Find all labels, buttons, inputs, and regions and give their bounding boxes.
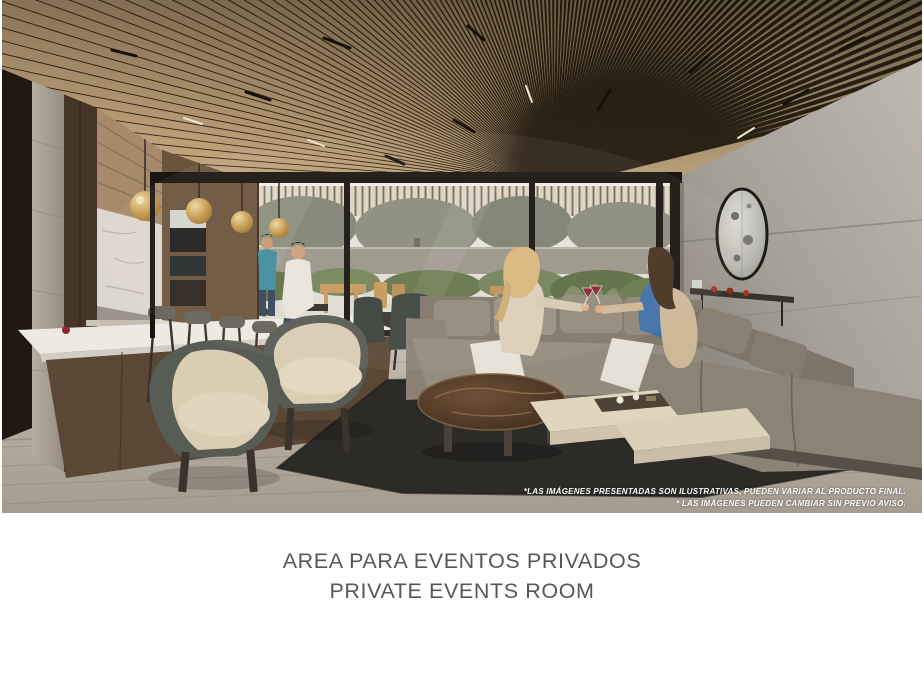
wine-glass [62, 326, 70, 334]
caption-line-english: PRIVATE EVENTS ROOM [0, 576, 924, 606]
events-room-rendering: *LAS IMÁGENES PRESENTADAS SON ILUSTRATIV… [2, 0, 922, 513]
disclaimer-line-1: *LAS IMÁGENES PRESENTADAS SON ILUSTRATIV… [524, 486, 906, 498]
caption: AREA PARA EVENTOS PRIVADOS PRIVATE EVENT… [0, 546, 924, 606]
rendering-scene [2, 0, 922, 513]
image-disclaimer: *LAS IMÁGENES PRESENTADAS SON ILUSTRATIV… [524, 486, 906, 509]
brochure-slide: *LAS IMÁGENES PRESENTADAS SON ILUSTRATIV… [0, 0, 924, 675]
window-glow [102, 130, 742, 370]
caption-line-spanish: AREA PARA EVENTOS PRIVADOS [0, 546, 924, 576]
disclaimer-line-2: * LAS IMÁGENES PUEDEN CAMBIAR SIN PREVIO… [524, 498, 906, 510]
